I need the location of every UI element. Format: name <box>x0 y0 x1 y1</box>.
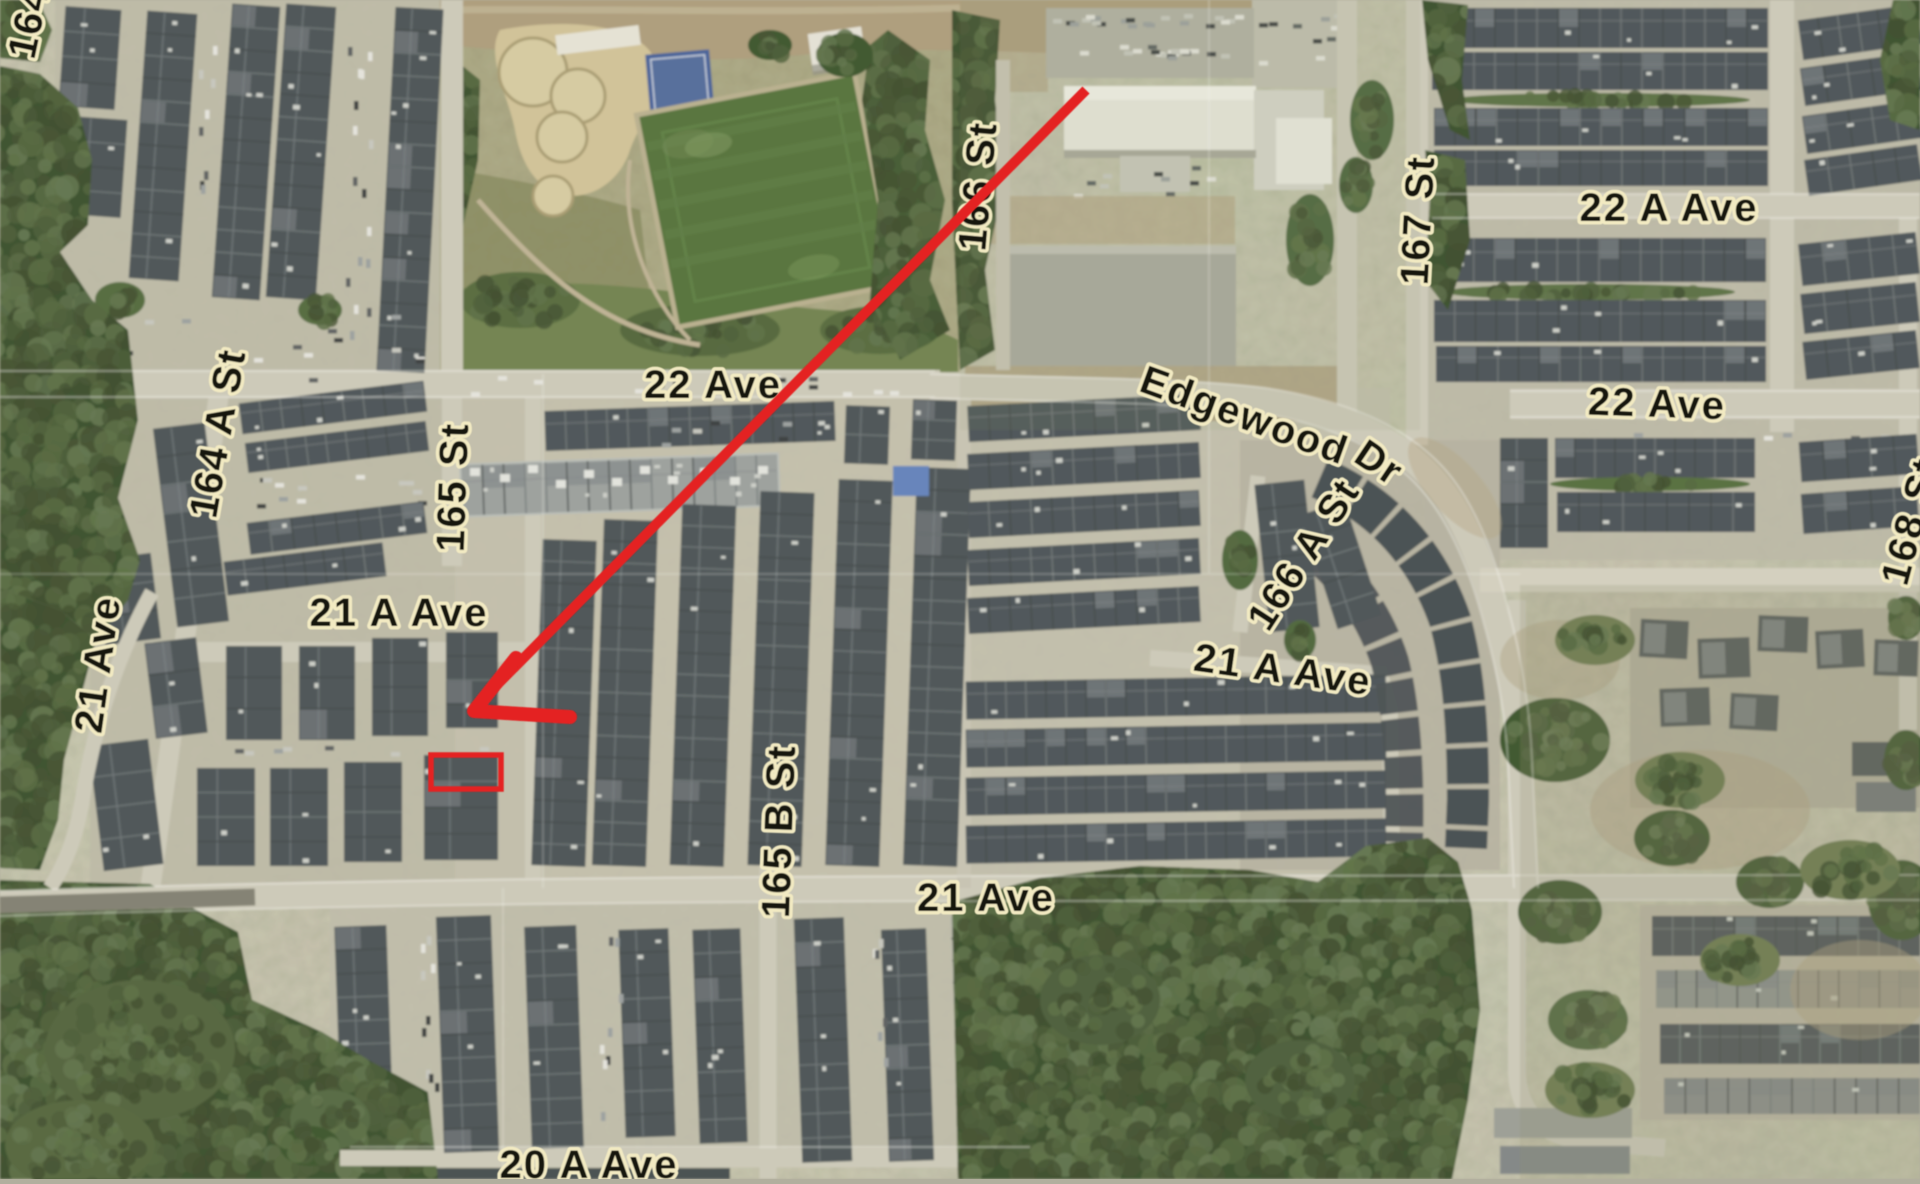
svg-text:22 Ave: 22 Ave <box>1587 380 1726 429</box>
svg-text:21 Ave: 21 Ave <box>917 876 1055 920</box>
svg-text:21 A Ave: 21 A Ave <box>309 591 488 635</box>
svg-text:20 A Ave: 20 A Ave <box>499 1143 678 1179</box>
svg-text:165 B St: 165 B St <box>754 743 804 918</box>
svg-text:22 A Ave: 22 A Ave <box>1579 186 1758 230</box>
svg-text:22 Ave: 22 Ave <box>644 363 782 407</box>
svg-text:165 St: 165 St <box>429 421 478 552</box>
svg-text:167 St: 167 St <box>1393 154 1444 286</box>
